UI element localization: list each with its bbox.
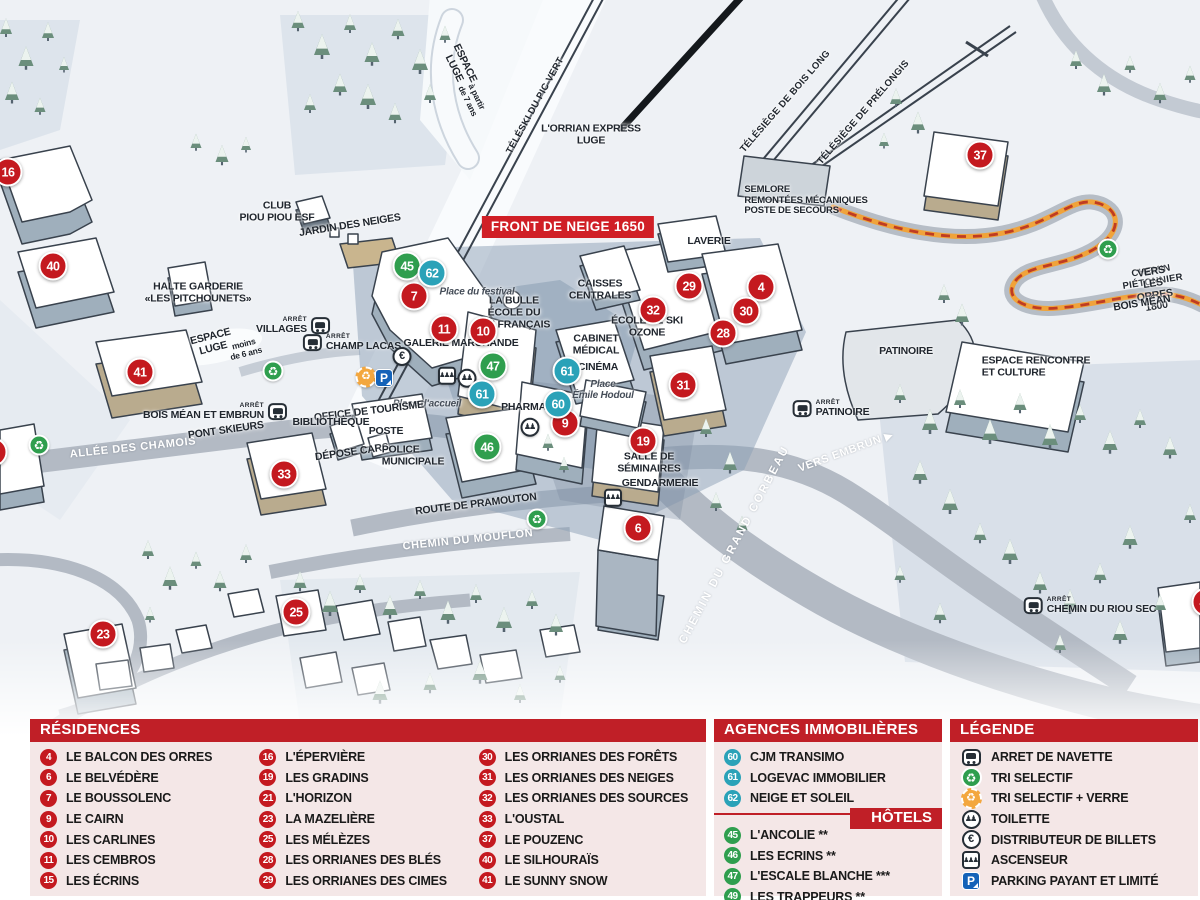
service-icon <box>356 367 377 388</box>
agence-name: LOGEVAC IMMOBILIER <box>750 771 886 785</box>
map-label: Place du festival <box>440 286 515 297</box>
map-marker-number: 32 <box>647 303 660 317</box>
map-marker-number: 29 <box>683 279 696 293</box>
map-marker: 40 <box>39 252 68 281</box>
residence-name: LES ÉCRINS <box>66 874 139 888</box>
hotel-name: LES ECRINS ** <box>750 849 836 863</box>
residence-number-badge: 37 <box>479 831 496 848</box>
residence-name: LE BELVÉDÈRE <box>66 771 159 785</box>
bus-icon <box>311 317 330 334</box>
residence-number-badge: 6 <box>40 769 57 786</box>
legende-icon-glyph <box>962 749 981 766</box>
legend-row: ASCENSEUR <box>960 850 1190 871</box>
service-icon-glyph <box>1098 239 1119 260</box>
residence-name: L'HORIZON <box>285 791 351 805</box>
residence-name: LES GRADINS <box>285 771 368 785</box>
map-marker-number: 47 <box>487 359 500 373</box>
residence-name: LE SUNNY SNOW <box>505 874 608 888</box>
map-marker: 6 <box>624 514 653 543</box>
residence-number-badge: 25 <box>259 831 276 848</box>
residences-col3: 30 LES ORRIANES DES FORÊTS 31 LES ORRIAN… <box>479 747 698 891</box>
legend-row: 21 L'HORIZON <box>259 788 478 809</box>
hotel-name: LES TRAPPEURS ** <box>750 890 865 900</box>
map-marker-number: 31 <box>677 378 690 392</box>
residence-name: LES ORRIANES DES FORÊTS <box>505 750 678 764</box>
legende-icon-glyph <box>962 851 980 869</box>
map-marker-number: 25 <box>290 605 303 619</box>
panel-agences-hotels: AGENCES IMMOBILIÈRES 60 CJM TRANSIMO 61 … <box>714 719 942 896</box>
service-icon-glyph <box>604 488 622 506</box>
residence-number-badge: 19 <box>259 769 276 786</box>
legende-icon <box>960 851 982 869</box>
legende-icon <box>960 872 982 890</box>
legend-row: 61 LOGEVAC IMMOBILIER <box>724 768 934 789</box>
bus-icon <box>793 400 812 417</box>
hotel-number-badge: 47 <box>724 868 741 885</box>
legende-icon <box>960 810 982 829</box>
service-icon <box>438 364 456 385</box>
residence-name: LE BOUSSOLENC <box>66 791 171 805</box>
map-marker: 11 <box>430 315 459 344</box>
agence-name: CJM TRANSIMO <box>750 750 844 764</box>
map-marker-number: 6 <box>635 521 641 535</box>
service-icon-glyph <box>393 347 412 366</box>
bus-icon <box>1024 597 1043 614</box>
map-marker-number: 61 <box>476 387 489 401</box>
residence-name: LES CEMBROS <box>66 853 155 867</box>
legend-row: ARRET DE NAVETTE <box>960 747 1190 768</box>
residence-name: LES CARLINES <box>66 833 155 847</box>
residence-name: LE POUZENC <box>505 833 584 847</box>
service-icon-glyph <box>29 435 50 456</box>
legend-row: PARKING PAYANT ET LIMITÉ <box>960 871 1190 892</box>
residence-number-badge: 41 <box>479 872 496 889</box>
legend-row: 31 LES ORRIANES DES NEIGES <box>479 768 698 789</box>
map-marker-number: 7 <box>411 289 417 303</box>
map-marker-number: 9 <box>562 416 568 430</box>
residence-number-badge: 7 <box>40 790 57 807</box>
legend-row: 40 LE SILHOURAÏS <box>479 850 698 871</box>
residence-name: LA MAZELIÈRE <box>285 812 375 826</box>
map-marker: 10 <box>469 317 498 346</box>
map-label: GALERIE MARCHANDE <box>403 338 518 350</box>
residence-number-badge: 11 <box>40 852 57 869</box>
legend-row: 15 LES ÉCRINS <box>40 871 259 892</box>
map-marker-number: 16 <box>2 165 15 179</box>
service-icon-glyph <box>521 417 540 436</box>
map-marker-number: 62 <box>426 266 439 280</box>
map-marker-number: 61 <box>561 364 574 378</box>
residence-number-badge: 4 <box>40 749 57 766</box>
map-marker: 46 <box>473 433 502 462</box>
legende-icon <box>960 749 982 766</box>
service-icon <box>393 346 412 366</box>
map-label: ESPACE RENCONTRE ET CULTURE <box>982 355 1091 379</box>
residence-name: LES ORRIANES DES SOURCES <box>505 791 688 805</box>
legend-row: 25 LES MÉLÈZES <box>259 829 478 850</box>
legend-row: 37 LE POUZENC <box>479 829 698 850</box>
service-icon-glyph <box>356 367 377 388</box>
map-marker: 31 <box>669 371 698 400</box>
map-marker-number: 33 <box>278 467 291 481</box>
legend-row: 33 L'OUSTAL <box>479 809 698 830</box>
map-marker-number: 23 <box>97 627 110 641</box>
legend-row: 49 LES TRAPPEURS ** <box>724 887 934 900</box>
residence-name: LES ORRIANES DES CIMES <box>285 874 447 888</box>
map-label: CABINET MÉDICAL <box>573 333 619 357</box>
service-icon <box>29 435 50 456</box>
bus-stop: ARRÊT BOIS MÉAN ET EMBRUN <box>143 403 287 421</box>
map-label: CLUB PIOU PIOU ESF <box>240 200 315 224</box>
map-label: CINÉMA <box>578 362 618 374</box>
bus-stop: ARRÊT VILLAGES <box>256 317 330 335</box>
map-label: PATINOIRE <box>879 346 933 358</box>
map-marker-number: 46 <box>481 440 494 454</box>
bus-stop: ARRÊT CHEMIN DU RIOU SEC <box>1024 597 1157 615</box>
map-marker: 33 <box>270 460 299 489</box>
map-label: SEMLORE REMONTÉES MÉCANIQUES POSTE DE SE… <box>744 185 867 217</box>
legende-icon <box>960 788 982 809</box>
map-label: LAVERIE <box>687 236 730 248</box>
residence-name: LE CAIRN <box>66 812 123 826</box>
residence-name: L'OUSTAL <box>505 812 564 826</box>
legend-row: 11 LES CEMBROS <box>40 850 259 871</box>
bus-icon <box>303 334 322 351</box>
map-marker-number: 19 <box>637 434 650 448</box>
bus-stop-name: CHAMP LACAS <box>326 341 401 352</box>
legende-label: ARRET DE NAVETTE <box>991 750 1113 764</box>
map-marker: 47 <box>479 352 508 381</box>
legend-row: 62 NEIGE ET SOLEIL <box>724 788 934 809</box>
residence-name: LES ORRIANES DES BLÉS <box>285 853 441 867</box>
residences-col1: 4 LE BALCON DES ORRES 6 LE BELVÉDÈRE 7 L… <box>40 747 259 891</box>
residence-name: LE SILHOURAÏS <box>505 853 599 867</box>
panel-legende-title: LÉGENDE <box>950 719 1198 742</box>
legend-row: 4 LE BALCON DES ORRES <box>40 747 259 768</box>
legende-icon-glyph <box>962 830 981 849</box>
legend-row: 16 L'ÉPERVIÈRE <box>259 747 478 768</box>
agences-list: 60 CJM TRANSIMO 61 LOGEVAC IMMOBILIER 62… <box>724 747 934 809</box>
map-marker: 61 <box>468 380 497 409</box>
service-icon <box>604 486 622 507</box>
service-icon <box>1098 239 1119 260</box>
residence-name: L'ÉPERVIÈRE <box>285 750 365 764</box>
map-marker-number: 41 <box>134 365 147 379</box>
map-marker: 25 <box>282 598 311 627</box>
map-label: L'ORRIAN EXPRESS LUGE <box>541 123 641 147</box>
service-icon <box>263 361 284 382</box>
legende-icon <box>960 830 982 849</box>
map-marker-number: 28 <box>717 326 730 340</box>
residence-number-badge: 31 <box>479 769 496 786</box>
map-marker: 7 <box>400 282 429 311</box>
map-marker: 41 <box>126 358 155 387</box>
map-marker: 30 <box>732 297 761 326</box>
residence-number-badge: 29 <box>259 872 276 889</box>
map-marker-number: 60 <box>552 397 565 411</box>
residence-name: LES MÉLÈZES <box>285 833 370 847</box>
map-marker-number: 45 <box>401 259 414 273</box>
hotel-number-badge: 46 <box>724 847 741 864</box>
legend-row: DISTRIBUTEUR DE BILLETS <box>960 829 1190 850</box>
hotel-name: L'ANCOLIE ** <box>750 828 828 842</box>
residence-name: LE BALCON DES ORRES <box>66 750 212 764</box>
map-marker-number: 30 <box>740 304 753 318</box>
residence-name: LES ORRIANES DES NEIGES <box>505 771 674 785</box>
service-icon <box>375 369 393 387</box>
residence-number-badge: 33 <box>479 811 496 828</box>
resort-map: ESPACE LUGEà partir de 7 ansTÉLÉSKI DU P… <box>0 0 1200 736</box>
hotel-name: L'ESCALE BLANCHE *** <box>750 869 890 883</box>
map-marker-number: 40 <box>47 259 60 273</box>
legende-label: ASCENSEUR <box>991 853 1068 867</box>
service-icon-glyph <box>438 366 456 384</box>
legend-row: 60 CJM TRANSIMO <box>724 747 934 768</box>
map-label: HALTE GARDERIE «LES PITCHOUNETS» <box>145 281 252 305</box>
legende-label: TOILETTE <box>991 812 1050 826</box>
ski-resort-map-page: ESPACE LUGEà partir de 7 ansTÉLÉSKI DU P… <box>0 0 1200 900</box>
legende-icon-glyph <box>961 767 982 788</box>
legende-icon-glyph <box>962 810 981 829</box>
hotels-list: 45 L'ANCOLIE ** 46 LES ECRINS ** 47 L'ES… <box>724 825 934 900</box>
bus-stop-name: VILLAGES <box>256 324 307 335</box>
panel-legende: LÉGENDE ARRET DE NAVETTE TRI SELECTIF TR… <box>950 719 1198 896</box>
legend-row: TOILETTE <box>960 809 1190 830</box>
legend-row: 32 LES ORRIANES DES SOURCES <box>479 788 698 809</box>
residence-number-badge: 10 <box>40 831 57 848</box>
residence-number-badge: 21 <box>259 790 276 807</box>
residence-number-badge: 9 <box>40 811 57 828</box>
bus-stop: ARRÊT PATINOIRE <box>793 400 870 418</box>
map-marker-number: 10 <box>477 324 490 338</box>
bus-stop-name: CHEMIN DU RIOU SEC <box>1047 604 1157 615</box>
service-icon <box>521 416 540 437</box>
map-marker-number: 4 <box>758 280 764 294</box>
agence-number-badge: 60 <box>724 749 741 766</box>
map-label: GENDARMERIE <box>622 478 699 490</box>
legend-row: TRI SELECTIF <box>960 768 1190 789</box>
legende-label: DISTRIBUTEUR DE BILLETS <box>991 833 1156 847</box>
legend-row: 29 LES ORRIANES DES CIMES <box>259 871 478 892</box>
legende-icon-glyph <box>962 872 980 890</box>
legend-row: 19 LES GRADINS <box>259 768 478 789</box>
residence-number-badge: 16 <box>259 749 276 766</box>
service-icon-glyph <box>527 509 548 530</box>
map-marker: 19 <box>629 427 658 456</box>
legende-list: ARRET DE NAVETTE TRI SELECTIF TRI SELECT… <box>960 747 1190 891</box>
residence-number-badge: 23 <box>259 811 276 828</box>
bus-stop: ARRÊT CHAMP LACAS <box>303 334 401 352</box>
agence-number-badge: 61 <box>724 769 741 786</box>
service-icon-glyph <box>375 369 393 387</box>
legend-row: 46 LES ECRINS ** <box>724 845 934 866</box>
legend-row: 47 L'ESCALE BLANCHE *** <box>724 866 934 887</box>
panel-residences: RÉSIDENCES 4 LE BALCON DES ORRES 6 LE BE… <box>30 719 706 896</box>
map-marker: 29 <box>675 272 704 301</box>
map-label: SALLE DE SÉMINAIRES <box>617 451 680 475</box>
bus-icon <box>268 403 287 420</box>
legende-label: TRI SELECTIF + VERRE <box>991 791 1128 805</box>
map-label: CAISSES CENTRALES <box>569 278 631 302</box>
legend-row: 7 LE BOUSSOLENC <box>40 788 259 809</box>
service-icon <box>527 509 548 530</box>
residence-number-badge: 30 <box>479 749 496 766</box>
map-marker: 62 <box>418 259 447 288</box>
residence-number-badge: 40 <box>479 852 496 869</box>
map-label: Place Émile Hodoul <box>572 379 634 401</box>
map-label: POSTE <box>369 426 404 438</box>
legend-row: 28 LES ORRIANES DES BLÉS <box>259 850 478 871</box>
map-label: POLICE MUNICIPALE <box>382 444 445 468</box>
legend-row: 10 LES CARLINES <box>40 829 259 850</box>
agence-name: NEIGE ET SOLEIL <box>750 791 854 805</box>
legend-row: 6 LE BELVÉDÈRE <box>40 768 259 789</box>
hotel-number-badge: 49 <box>724 888 741 900</box>
legend-row: 30 LES ORRIANES DES FORÊTS <box>479 747 698 768</box>
map-marker: 32 <box>639 296 668 325</box>
map-marker: 61 <box>553 357 582 386</box>
hotel-number-badge: 45 <box>724 827 741 844</box>
map-marker-number: 37 <box>974 148 987 162</box>
bus-stop-name: BOIS MÉAN ET EMBRUN <box>143 410 264 421</box>
legende-label: TRI SELECTIF <box>991 771 1073 785</box>
map-marker: 28 <box>709 319 738 348</box>
legende-icon-glyph <box>961 788 982 809</box>
bus-stop-name: PATINOIRE <box>816 407 870 418</box>
legende-label: PARKING PAYANT ET LIMITÉ <box>991 874 1158 888</box>
map-marker: 37 <box>966 141 995 170</box>
panel-residences-title: RÉSIDENCES <box>30 719 706 742</box>
agence-number-badge: 62 <box>724 790 741 807</box>
map-marker-number: 11 <box>438 322 450 336</box>
residence-number-badge: 28 <box>259 852 276 869</box>
residences-col2: 16 L'ÉPERVIÈRE 19 LES GRADINS 21 L'HORIZ… <box>259 747 478 891</box>
panel-hotels-title: HÔTELS <box>850 808 942 829</box>
legend-row: 41 LE SUNNY SNOW <box>479 871 698 892</box>
legend-row: TRI SELECTIF + VERRE <box>960 788 1190 809</box>
map-label: BIBLIOTHÈQUE <box>293 417 370 429</box>
legend-row: 23 LA MAZELIÈRE <box>259 809 478 830</box>
panel-agences-title: AGENCES IMMOBILIÈRES <box>714 719 942 742</box>
residence-number-badge: 32 <box>479 790 496 807</box>
map-marker: 23 <box>89 620 118 649</box>
front-de-neige-badge: FRONT DE NEIGE 1650 <box>482 216 654 238</box>
residence-number-badge: 15 <box>40 872 57 889</box>
service-icon-glyph <box>263 361 284 382</box>
map-marker: 60 <box>544 390 573 419</box>
legende-icon <box>960 767 982 788</box>
legend-row: 9 LE CAIRN <box>40 809 259 830</box>
